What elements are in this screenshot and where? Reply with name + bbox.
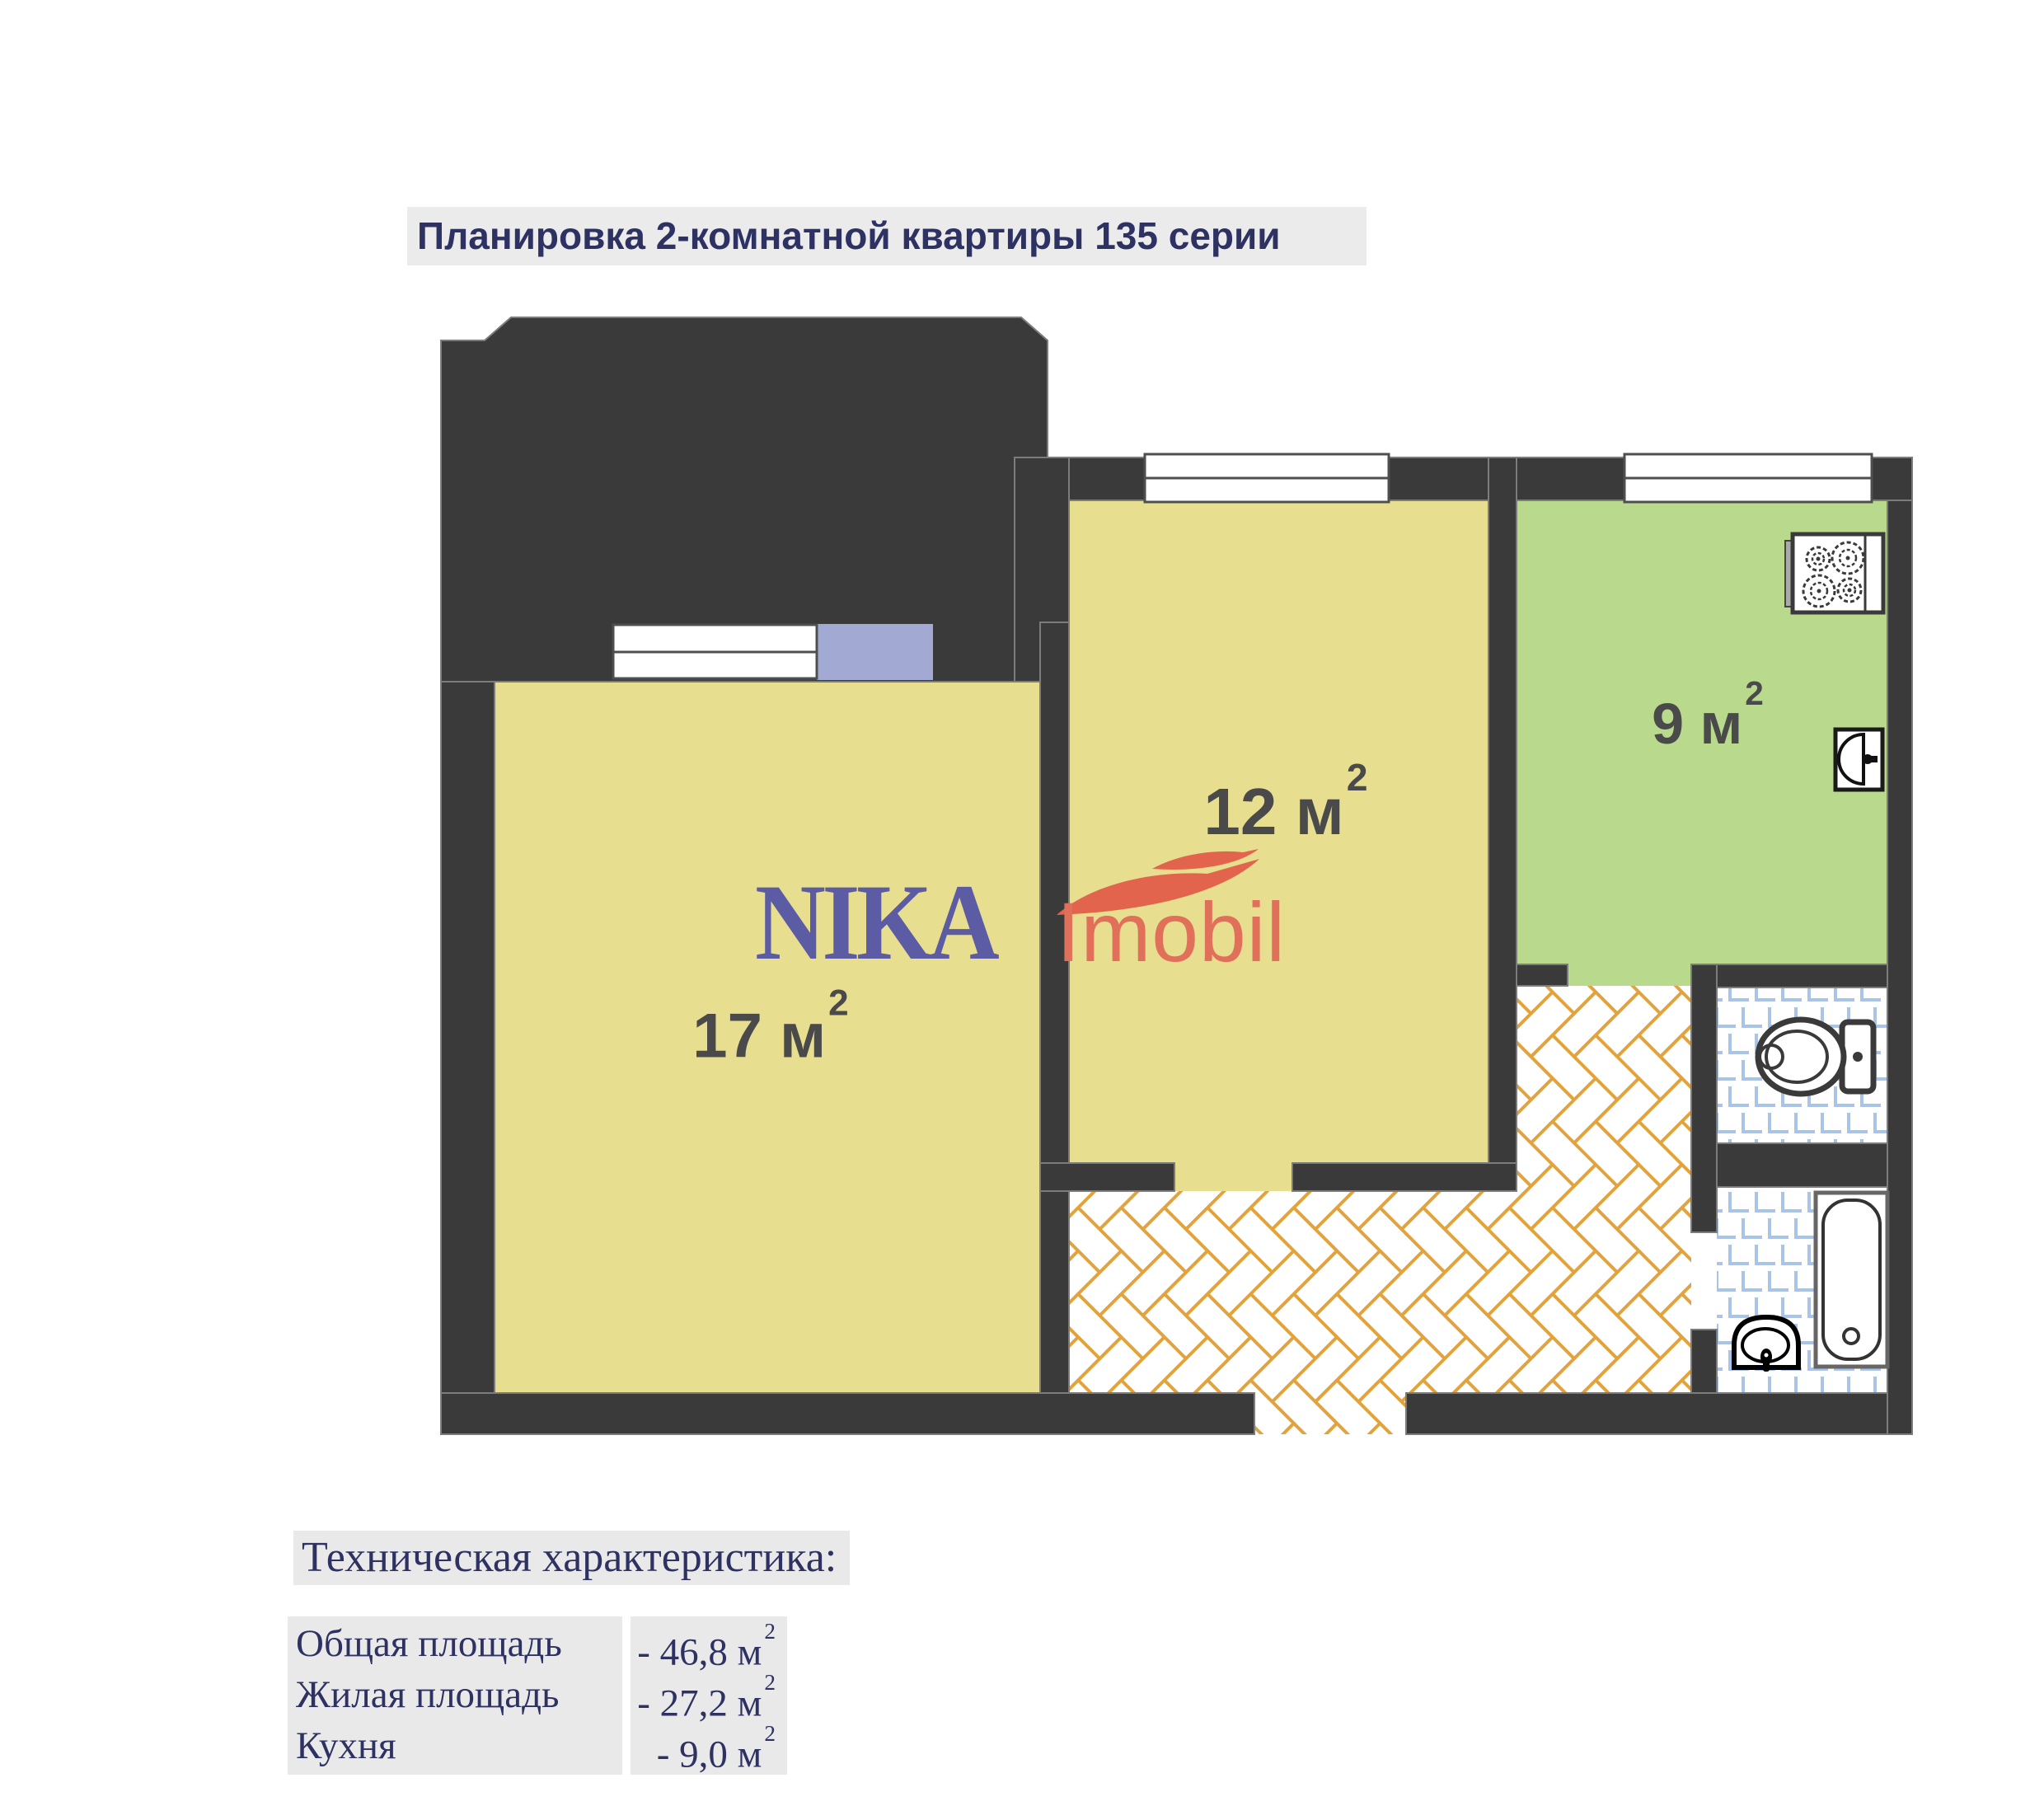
spec-value: - 9,0 м2	[631, 1720, 776, 1771]
window	[1145, 454, 1389, 502]
page: Планировка 2-комнатной квартиры 135 сери…	[0, 0, 2044, 1820]
room-12-door	[1174, 1163, 1292, 1191]
spec-values-column: - 46,8 м2 - 27,2 м2 - 9,0 м2	[631, 1616, 787, 1775]
spec-label: Общая площадь	[296, 1618, 622, 1669]
washbasin-icon	[1734, 1317, 1798, 1372]
bathtub-icon	[1816, 1193, 1887, 1367]
toilet-icon	[1758, 1020, 1873, 1094]
page-title: Планировка 2-комнатной квартиры 135 сери…	[407, 207, 1367, 265]
spec-label: Жилая площадь	[296, 1669, 622, 1720]
window	[613, 625, 817, 678]
room-label-17: 17 м2	[692, 1001, 848, 1072]
kitchen-sink-icon	[1835, 729, 1882, 790]
room-label-12: 12 м2	[1203, 774, 1367, 850]
spec-value: - 46,8 м2	[631, 1618, 776, 1669]
room-label-kitchen: 9 м2	[1652, 691, 1764, 757]
specs-heading: Техническая характеристика:	[293, 1531, 850, 1585]
logo-imobil: Imobil	[1057, 890, 1286, 974]
logo-nika: NIKA	[755, 868, 996, 977]
stove-icon	[1785, 534, 1883, 612]
balcony-door-opening	[817, 624, 933, 680]
spec-table: Общая площадь Жилая площадь Кухня - 46,8…	[288, 1616, 787, 1775]
spec-label: Кухня	[296, 1720, 622, 1771]
window	[1624, 454, 1872, 502]
kitchen-door	[1568, 964, 1691, 986]
spec-value: - 27,2 м2	[631, 1669, 776, 1720]
spec-labels-column: Общая площадь Жилая площадь Кухня	[288, 1616, 622, 1775]
